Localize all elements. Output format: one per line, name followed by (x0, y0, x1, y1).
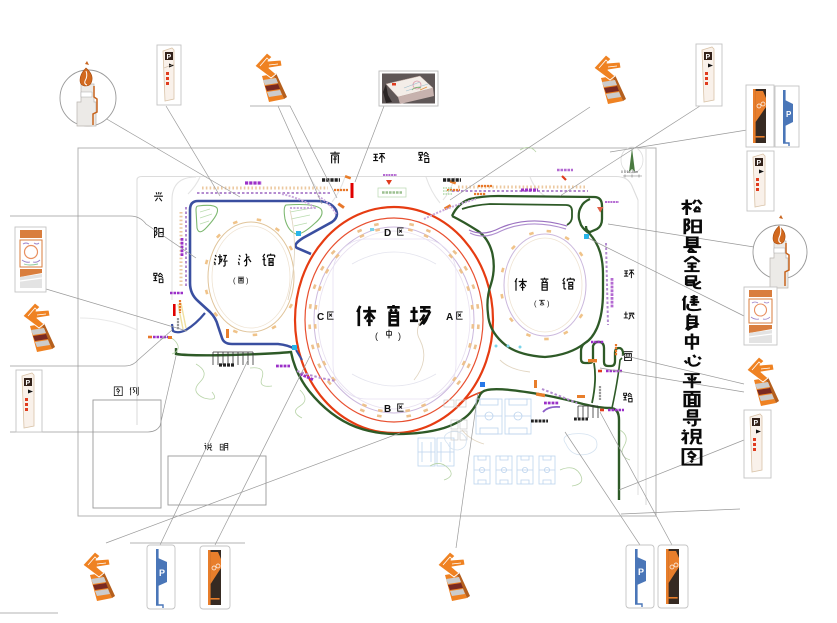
svg-text:P: P (638, 567, 644, 577)
svg-text:(: ( (534, 299, 537, 308)
svg-text:(: ( (375, 331, 378, 341)
svg-text:B: B (384, 404, 391, 415)
svg-text:(: ( (233, 276, 236, 285)
svg-text:C: C (317, 312, 324, 323)
svg-text:P: P (706, 54, 711, 61)
svg-text:P: P (786, 110, 792, 119)
svg-text:P: P (754, 420, 759, 427)
svg-text:P: P (26, 380, 31, 387)
svg-text:): ) (246, 276, 249, 285)
svg-text:D: D (384, 228, 391, 239)
svg-text:0 5 10 20m: 0 5 10 20m (621, 170, 638, 174)
svg-text:P: P (167, 54, 172, 61)
svg-text:P: P (757, 160, 762, 167)
svg-text:P: P (159, 568, 165, 578)
svg-text:): ) (398, 331, 401, 341)
svg-text:): ) (547, 299, 550, 308)
svg-text:A: A (446, 312, 453, 323)
